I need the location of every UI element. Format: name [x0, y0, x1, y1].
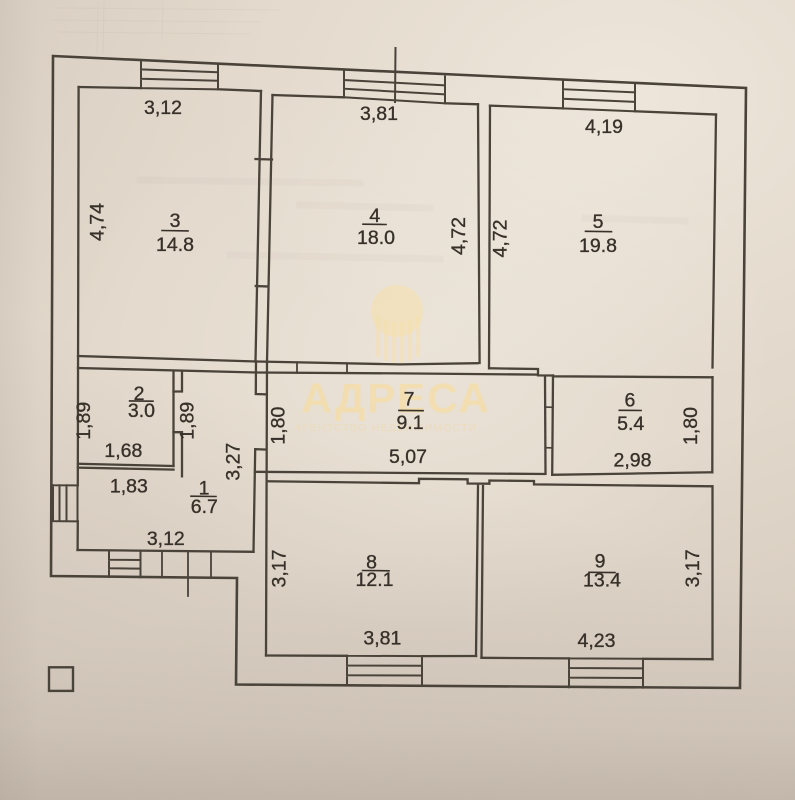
svg-text:1,89: 1,89 — [176, 402, 198, 440]
svg-text:3,17: 3,17 — [682, 549, 704, 587]
svg-text:3,17: 3,17 — [269, 550, 291, 588]
svg-text:9.1: 9.1 — [396, 412, 423, 434]
svg-text:4,19: 4,19 — [585, 116, 623, 138]
svg-text:14.8: 14.8 — [156, 234, 194, 256]
svg-text:19.8: 19.8 — [579, 235, 617, 257]
svg-text:12.1: 12.1 — [356, 569, 394, 591]
svg-text:7: 7 — [404, 389, 415, 411]
svg-text:3,27: 3,27 — [223, 443, 245, 481]
svg-text:3: 3 — [170, 210, 181, 232]
svg-text:1,80: 1,80 — [680, 407, 702, 445]
svg-text:1,83: 1,83 — [110, 476, 148, 498]
svg-text:3,12: 3,12 — [144, 97, 182, 119]
svg-text:2,98: 2,98 — [614, 449, 652, 471]
svg-text:4,72: 4,72 — [448, 217, 470, 255]
svg-text:3,81: 3,81 — [363, 627, 401, 649]
svg-text:3,12: 3,12 — [147, 528, 185, 550]
svg-text:4,72: 4,72 — [490, 220, 512, 258]
svg-text:6: 6 — [624, 390, 635, 412]
svg-text:18.0: 18.0 — [357, 227, 395, 249]
svg-text:АГЕНТСТВО НЕДВИЖИМОСТИ: АГЕНТСТВО НЕДВИЖИМОСТИ — [294, 422, 477, 434]
svg-text:6.7: 6.7 — [191, 496, 218, 518]
svg-text:5.4: 5.4 — [617, 413, 644, 435]
svg-text:4,74: 4,74 — [87, 203, 109, 241]
svg-text:1,89: 1,89 — [73, 402, 95, 440]
svg-text:3,81: 3,81 — [360, 103, 398, 125]
svg-text:1,68: 1,68 — [104, 440, 142, 462]
svg-text:5,07: 5,07 — [389, 446, 427, 468]
svg-text:3.0: 3.0 — [128, 400, 155, 422]
svg-text:4,23: 4,23 — [578, 630, 616, 652]
svg-text:1,80: 1,80 — [267, 406, 289, 444]
